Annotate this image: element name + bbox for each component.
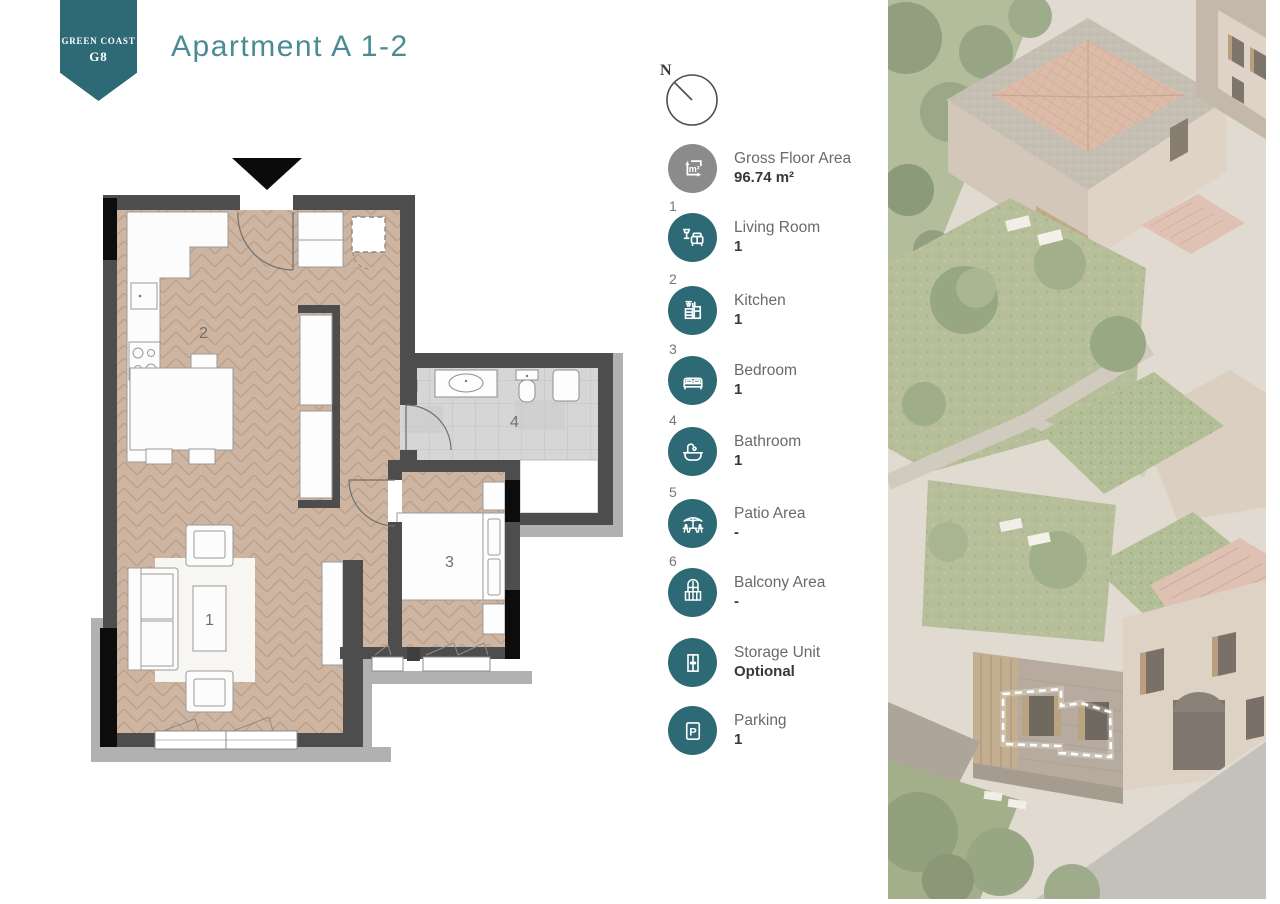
render-overlay: [888, 0, 1280, 899]
area-icon: m²: [668, 144, 717, 193]
legend-row-parking: P Parking 1: [668, 706, 787, 755]
lower-wardrobe: [322, 562, 343, 665]
svg-text:m²: m²: [688, 164, 699, 174]
floor-plan: 2 1 3 4: [85, 150, 625, 770]
render-right-margin: [1266, 0, 1280, 899]
living-room-icon: 1: [668, 213, 717, 262]
brand-pennant: GREEN COAST G8: [60, 0, 137, 101]
legend-num: 2: [669, 271, 677, 287]
parking-icon: P: [668, 706, 717, 755]
compass-north-label: N: [660, 62, 672, 80]
storage-icon: [668, 638, 717, 687]
living-room-label: Living Room: [734, 218, 820, 237]
legend-num: 6: [669, 553, 677, 569]
gfa-value: 96.74 m²: [734, 169, 851, 188]
bedroom-label: 3: [445, 554, 454, 571]
legend-row-storage: Storage Unit Optional: [668, 638, 820, 687]
bathroom-icon: 4: [668, 427, 717, 476]
bedroom-label: Bedroom: [734, 361, 797, 380]
balcony-label: Balcony Area: [734, 573, 825, 592]
legend-num: 1: [669, 198, 677, 214]
legend-row-living-room: 1 Living Room 1: [668, 213, 820, 262]
kitchen-label: Kitchen: [734, 291, 786, 310]
storage-label: Storage Unit: [734, 643, 820, 662]
bedroom-value: 1: [734, 381, 797, 400]
entry-closet: [298, 212, 343, 267]
legend-num: 5: [669, 484, 677, 500]
gfa-label: Gross Floor Area: [734, 149, 851, 168]
brochure-page: { "badge": { "line1": "GREEN COAST", "li…: [0, 0, 1280, 899]
legend-row-bedroom: 3 Bedroom 1: [668, 356, 797, 405]
page-title: Apartment A 1-2: [171, 30, 409, 64]
legend-row-bathroom: 4 Bathroom 1: [668, 427, 801, 476]
patio-icon: 5: [668, 499, 717, 548]
kitchen-value: 1: [734, 311, 786, 330]
living-label: 1: [205, 612, 214, 629]
kitchen-icon: 2: [668, 286, 717, 335]
bedroom-icon: 3: [668, 356, 717, 405]
storage-value: Optional: [734, 663, 820, 682]
site-render: [888, 0, 1280, 899]
legend-row-kitchen: 2 Kitchen 1: [668, 286, 786, 335]
patio-value: -: [734, 524, 806, 543]
brand-name: GREEN COAST: [60, 36, 137, 46]
legend-row-patio: 5 Patio Area -: [668, 499, 806, 548]
floor-plan-drawing: 2 1 3 4: [85, 150, 625, 770]
bathroom-label: 4: [510, 414, 519, 431]
dining-table: [130, 354, 233, 464]
bathroom-label: Bathroom: [734, 432, 801, 451]
parking-value: 1: [734, 731, 787, 750]
kitchen-label: 2: [199, 325, 208, 342]
parking-label: Parking: [734, 711, 787, 730]
legend-num: 4: [669, 412, 677, 428]
optional-storage-dashed: [352, 217, 385, 252]
brand-building: G8: [60, 49, 137, 65]
balcony-icon: 6: [668, 568, 717, 617]
living-room-value: 1: [734, 238, 820, 257]
site-render-image: [888, 0, 1280, 899]
parking-letter: P: [689, 726, 697, 738]
patio-label: Patio Area: [734, 504, 806, 523]
legend-row-gfa: m² Gross Floor Area 96.74 m²: [668, 144, 851, 193]
closet-room: [520, 460, 598, 513]
legend-num: 3: [669, 341, 677, 357]
legend-row-balcony: 6 Balcony Area -: [668, 568, 825, 617]
entry-arrow: [232, 158, 302, 190]
balcony-value: -: [734, 593, 825, 612]
compass: N: [658, 64, 722, 128]
bathroom-value: 1: [734, 452, 801, 471]
